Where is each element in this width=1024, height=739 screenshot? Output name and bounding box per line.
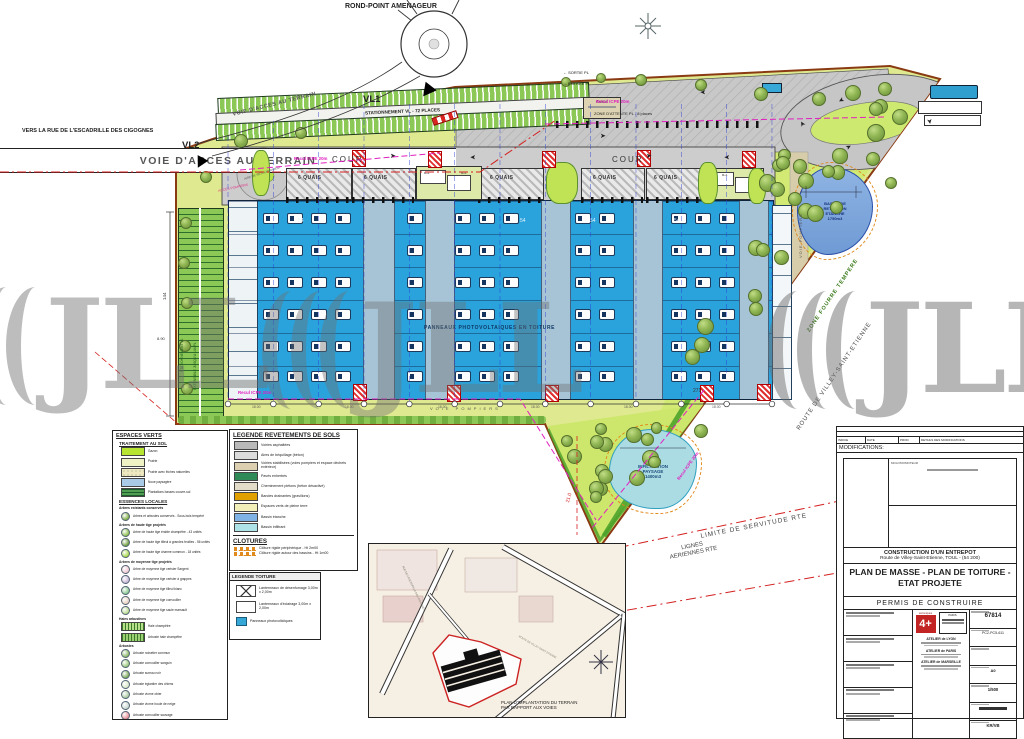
site-plan-sheet: JLL JLL JLL VOIE D'ACCES AU TERRAIN VERS… (0, 0, 1024, 718)
legend-row: Arbuste viorne obier (121, 690, 225, 699)
skylight (479, 277, 495, 288)
legend-swatch (121, 488, 145, 497)
dock-teeth (581, 197, 643, 203)
roof-strip (363, 201, 395, 399)
skylight (263, 309, 279, 320)
roof-purlin-lines (229, 201, 773, 399)
skylight-x-icon (236, 585, 256, 597)
skylight (575, 341, 591, 352)
legend-group-head: Arbustes (119, 644, 225, 648)
pl-label: PL (445, 62, 457, 73)
legend-row: Bassin infiltrant (234, 523, 355, 532)
tree-icon (832, 148, 847, 163)
location-inset-map: RUE DE L'ESCADRILLE DES CIGOGNES ROUTE D… (368, 543, 626, 718)
technical-box-icon (428, 151, 442, 168)
dock-module (646, 168, 704, 200)
dim-18: 18.00 (345, 406, 354, 410)
zone-attente-label: ZONE D'ATTENTE PL - 8 places (594, 112, 652, 117)
dock-module (581, 168, 645, 200)
legend-row: Lanterneaux de désenfumage 3,00m x 2,00m (236, 585, 318, 597)
inset-compass-icon (589, 650, 613, 674)
tree-icon (595, 423, 607, 435)
tree-icon (749, 302, 763, 316)
decoration (924, 645, 958, 647)
skylight (599, 309, 615, 320)
signatory-cell (844, 662, 912, 688)
skylight (455, 213, 471, 224)
legend-row: Arbre de haute tige charme commun - 18 u… (121, 549, 225, 558)
warehouse-building (228, 200, 774, 400)
dim-144: 144 (162, 292, 167, 300)
dock-module (286, 168, 352, 200)
legend-row: Prairie (121, 458, 225, 467)
fence-icon (234, 552, 256, 556)
legend-label: Aires de béquillage (béton) (261, 454, 304, 458)
vl1-label: VL1 (363, 95, 380, 106)
skylight (287, 245, 303, 256)
legend-row: Arbuste viorne boule de neige (121, 701, 225, 710)
signature-grid: tectoniques 4+ PARIS ATELIER de LYONATEL… (843, 610, 1017, 739)
legend-swatch (234, 492, 258, 501)
espaces-verts-legend: ESPACES VERTS TRAITEMENT AU SOL GazonPra… (112, 430, 228, 720)
logo-4plus: 4+ (916, 615, 936, 633)
value-text: PC2-PC5-611 (970, 631, 1016, 635)
tree-icon (178, 257, 190, 269)
legend-row: Arbuste églantier des chiens (121, 680, 225, 689)
legend-swatch (121, 468, 145, 477)
tree-legend-icon (121, 528, 130, 537)
tree-icon (590, 491, 602, 503)
skylight (407, 309, 423, 320)
bottom-hedge-strip (178, 416, 546, 424)
tree-icon (807, 205, 824, 222)
legend-group-head: Arbres de moyenne tige projetés (119, 560, 225, 564)
r1-label: R+1 (722, 174, 728, 177)
legend-label: Gazon (148, 450, 157, 453)
skylight (479, 245, 495, 256)
toiture-legend: LEGENDE TOITURE Lanterneaux de désenfuma… (229, 572, 321, 640)
project-address: Route de Villey-Saint-Etienne, TOUL - (5… (845, 556, 1015, 561)
legend-row: Aires de béquillage (béton) (234, 451, 355, 460)
legend-label: Arbre de moyenne tige saule marsault (133, 609, 187, 612)
skylight (407, 277, 423, 288)
skylight (695, 371, 711, 382)
legend-label: Arbuste haie champêtre (148, 636, 182, 639)
decoration (846, 693, 880, 695)
sortie-pl-label: ← SORTIE PL (563, 71, 589, 76)
technical-box-icon (542, 151, 556, 168)
atelier-block: ATELIER de MARSEILLE (913, 660, 969, 669)
legend-label: Plantations basses couvre-sol (148, 491, 190, 494)
dock-teeth (352, 197, 414, 203)
legend-swatch (234, 513, 258, 522)
legend-row: Cheminement piétons (béton désactivé) (234, 482, 355, 491)
decoration (924, 668, 958, 670)
skylight (407, 245, 423, 256)
value-cell: 1/500 (970, 684, 1016, 702)
flow-arrow-icon: ➤ (925, 118, 933, 125)
legend-title: LEGENDE TOITURE (230, 573, 320, 581)
office-room (447, 175, 471, 191)
order-stamp: PARIS (939, 612, 967, 634)
skylight (695, 245, 711, 256)
value-cell: PC2-PC5-611 (970, 629, 1016, 647)
cour-planting (546, 162, 578, 204)
legend-label: Arbuste cornouiller sanguin (133, 662, 172, 665)
dock-teeth (478, 197, 542, 203)
tree-legend-icon (121, 575, 130, 584)
legend-label: Voiries asphaltées (261, 444, 290, 448)
project-box: CONSTRUCTION D'UN ENTREPOT Route de Vill… (843, 548, 1017, 564)
atelier-block: ATELIER de LYON (913, 637, 969, 646)
skylight (719, 341, 735, 352)
decoration (924, 656, 958, 658)
atelier-name: ATELIER de MARSEILLE (913, 660, 969, 664)
skylight (599, 277, 615, 288)
tree-legend-icon (121, 549, 130, 558)
roof-strip (425, 201, 455, 399)
east-rooms-column (772, 205, 792, 400)
technical-box-icon (447, 385, 461, 402)
legend-label: Arbuste noisetier commun (133, 652, 170, 655)
legend-label: Lanterneaux de désenfumage 3,00m x 2,00m (259, 587, 318, 595)
technical-box-icon (757, 384, 771, 401)
legend-row: Clôture rigide autour des bassins - Ht 1… (234, 552, 355, 556)
skylight (719, 371, 735, 382)
legend-label: Arbuste églantier des chiens (133, 683, 173, 686)
entree-pl-text: ENTREE PL (568, 81, 590, 86)
tree-icon (866, 152, 880, 166)
tree-legend-icon (121, 690, 130, 699)
tree-icon (648, 456, 661, 469)
legend-swatch (234, 482, 258, 491)
dim-18: 18.00 (624, 406, 633, 410)
legend-title: ESPACES VERTS (116, 433, 224, 439)
vl2-label: VL2 (182, 141, 199, 152)
legend-label: Arbre de moyenne tige cerisier à grappes (133, 578, 191, 581)
legend-row: Arbuste noisetier commun (121, 649, 225, 658)
quais-label: 6 QUAIS (593, 176, 617, 182)
skylight (287, 277, 303, 288)
tree-icon (180, 217, 192, 229)
decoration (846, 689, 894, 691)
drawing-title-box: PLAN DE MASSE - PLAN DE TOITURE - ETAT P… (843, 564, 1017, 597)
legend-swatch (234, 503, 258, 512)
legend-label: Arbre de moyenne tige cerisier Sargent (133, 568, 188, 571)
legend-label: Espaces verts de pleine terre (261, 505, 308, 509)
value-text: 1/500 (970, 687, 1016, 692)
panneaux-photovoltaiques-label: PANNEAUX PHOTOVOLTAIQUES EN TOITURE (424, 326, 555, 332)
skylight (335, 309, 351, 320)
skylight (287, 309, 303, 320)
skylight (575, 309, 591, 320)
dim-18: 18.00 (531, 406, 540, 410)
dock-module (352, 168, 416, 200)
tree-icon (234, 134, 248, 148)
roundabout-label: ROND-POINT AMENAGEUR (345, 3, 437, 11)
dim-54: 54 (590, 219, 596, 225)
value-cell (970, 647, 1016, 665)
legend-label: Haie champêtre (148, 625, 171, 628)
skylight (503, 213, 519, 224)
legend-group-head: Arbres de haute tige projetés (119, 523, 225, 527)
skylight (575, 213, 591, 224)
skylight (479, 213, 495, 224)
decoration (971, 648, 989, 649)
tree-icon (812, 92, 826, 106)
legend-label: Arbre de moyenne tige cornouiller (133, 599, 181, 602)
stationnement-ext-label2: EXTENSIBLE JUSQU'A 144 PL (194, 342, 198, 390)
legend-label: Voiries stabilisées (voies pompiers et e… (261, 462, 355, 470)
value-text: A0 (970, 668, 1016, 673)
skylight (599, 341, 615, 352)
recul-icpe-label: Recul ICPE 20m (596, 99, 629, 104)
skylight (335, 341, 351, 352)
technical-box-icon (353, 384, 367, 401)
value-cell: 67814 (970, 610, 1016, 628)
legend-row: Bassin étanche (234, 513, 355, 522)
inset-map-drawing (369, 544, 625, 717)
tree-legend-icon (121, 606, 130, 615)
skylight (671, 341, 687, 352)
recul-icpe-label: Recul ICPE 20m (238, 390, 271, 395)
skylight (503, 371, 519, 382)
tree-icon (694, 424, 708, 438)
atelier-name: ATELIER de LYON (913, 637, 969, 641)
tree-icon (869, 102, 883, 116)
legend-row: Arbres et arbustes conservés - Sous-bois… (121, 512, 225, 521)
skylight (455, 277, 471, 288)
skylight (719, 245, 735, 256)
legend-row: Arbre de haute tige érable champêtre - 4… (121, 528, 225, 537)
mod-col: INDICE (837, 437, 866, 443)
decoration (846, 664, 894, 666)
skylight (575, 277, 591, 288)
tree-legend-icon (121, 586, 130, 595)
legend-row: Arbre de moyenne tige tilleul blanc (121, 586, 225, 595)
legend-label: Clôture rigide périphérique - Ht 2m00 (259, 547, 318, 551)
tree-legend-icon (121, 701, 130, 710)
skylight (263, 245, 279, 256)
skylight (335, 277, 351, 288)
skylight (263, 341, 279, 352)
flow-arrow-icon: ➤ (470, 153, 476, 160)
tree-legend-icon (121, 596, 130, 605)
legend-row: Clôture rigide périphérique - Ht 2m00 (234, 547, 355, 551)
tree-icon (830, 201, 843, 214)
legend-label: Cheminement piétons (béton désactivé) (261, 485, 325, 489)
legend-label: Bandes drainantes (gravillons) (261, 495, 310, 499)
flow-arrow-icon: ➤ (724, 153, 730, 160)
skylight (695, 277, 711, 288)
legend-row: Arbre de moyenne tige cornouiller (121, 596, 225, 605)
decoration (846, 615, 880, 617)
legend-row: Pavés enherbés (234, 472, 355, 481)
decoration (846, 612, 894, 614)
tree-legend-icon (121, 680, 130, 689)
recul-icpe-label: Recul ICPE 20m (294, 156, 327, 161)
sortie-pl-text: SORTIE PL (568, 70, 589, 75)
tree-icon (200, 171, 212, 183)
pl-waiting-spots (556, 121, 764, 128)
skylight (455, 245, 471, 256)
legend-label: Arbuste sureau noir (133, 672, 161, 675)
legend-label: Arbuste cornouiller sauvage (133, 714, 173, 717)
dim-18: 18.00 (438, 406, 447, 410)
legend-row: Arbuste sureau noir (121, 670, 225, 679)
skylight (263, 371, 279, 382)
voie-pompiers-label-vertical: VOIE POMPIERS (799, 213, 804, 258)
decoration (971, 704, 989, 705)
legend-swatch (121, 622, 145, 631)
legend-swatch (234, 523, 258, 532)
legend-label: Prairie (148, 460, 157, 463)
legend-label: Panneaux photovoltaïques (250, 620, 293, 624)
dim-271: 271 (693, 389, 701, 395)
skylight (287, 371, 303, 382)
skylight (335, 213, 351, 224)
tree-icon (596, 73, 606, 83)
dim-18: 18.00 (712, 406, 721, 410)
legend-row: Prairie avec friches naturelles (121, 468, 225, 477)
access-road-label: VOIE D'ACCES AU TERRAIN (140, 155, 317, 167)
decoration (846, 715, 894, 717)
roof-strip (541, 201, 571, 399)
technical-box-icon (742, 151, 756, 168)
pv-panel-icon (236, 617, 247, 626)
architect-logo: tectoniques 4+ (916, 612, 936, 633)
legend-label: Noue paysagère (148, 481, 171, 484)
skylight (599, 213, 615, 224)
cour-planting (698, 162, 718, 204)
modifications-label: MODIFICATIONS: (837, 444, 1023, 453)
title-block: INDICE DATE PROD DETAILS DES MODIFICATIO… (836, 426, 1024, 719)
decoration (921, 642, 960, 644)
legend-label: Arbuste viorne boule de neige (133, 703, 175, 706)
skylight (599, 245, 615, 256)
decoration (921, 654, 960, 656)
legend-label: Bassin infiltrant (261, 526, 285, 530)
dim-54: 54 (298, 219, 304, 225)
decoration (846, 641, 880, 643)
stationnement-ext-label1: STATIONNEMENT VL (181, 338, 185, 372)
legend-row: Arbuste cornouiller sauvage (121, 711, 225, 720)
tree-icon (798, 173, 814, 189)
tree-icon (845, 85, 861, 101)
legend-row: Arbre de moyenne tige cerisier Sargent (121, 565, 225, 574)
dim-18: 18.00 (252, 406, 261, 410)
legend-row: Panneaux photovoltaïques (236, 617, 318, 626)
legend-row: Arbre de moyenne tige saule marsault (121, 606, 225, 615)
legend-row: Arbuste haie champêtre (121, 633, 225, 642)
skylight (263, 277, 279, 288)
tree-legend-icon (121, 649, 130, 658)
legend-group-head: Haies arbustives (119, 617, 225, 621)
phase-box: PERMIS DE CONSTRUIRE (843, 597, 1017, 610)
skylight (695, 213, 711, 224)
value-cell (970, 703, 1016, 721)
cour-label: COUR (612, 155, 644, 164)
entree-pl-label: → ENTREE PL (563, 82, 590, 87)
dim-54: 54 (674, 219, 680, 225)
skylight (455, 371, 471, 382)
skylight (407, 213, 423, 224)
legend-row: Espaces verts de pleine terre (234, 503, 355, 512)
tree-legend-icon (121, 538, 130, 547)
skylight (311, 341, 327, 352)
legend-label: Bassin étanche (261, 516, 286, 520)
signatory-cell (844, 688, 912, 714)
revetements-legend: LEGENDE REVETEMENTS DE SOLS Voiries asph… (229, 429, 358, 571)
skylight (503, 341, 519, 352)
legend-row: Bandes drainantes (gravillons) (234, 492, 355, 501)
inset-caption: PLAN D'IMPLANTATION DU TERRAIN PAR RAPPO… (501, 700, 577, 710)
left-parking-spine (199, 208, 201, 418)
legend-label: Arbre de haute tige érable champêtre - 4… (133, 531, 202, 534)
roof-strip (633, 201, 663, 399)
flow-arrow-icon: ➤ (390, 153, 396, 160)
legend-row: Voiries asphaltées (234, 441, 355, 450)
signatory-cell (844, 636, 912, 662)
tree-legend-icon (121, 670, 130, 679)
skylight (719, 213, 735, 224)
fence-icon (234, 547, 256, 551)
dock-module (478, 168, 544, 200)
decoration (846, 638, 894, 640)
skylight (335, 245, 351, 256)
signatory-cell (844, 610, 912, 636)
modifications-header: INDICE DATE PROD DETAILS DES MODIFICATIO… (837, 437, 1023, 444)
skylight (407, 341, 423, 352)
legend-subtitle-essences: ESSENCES LOCALES (119, 499, 224, 504)
tree-legend-icon (121, 711, 130, 720)
tree-icon (774, 250, 789, 265)
legend-subtitle-sols: TRAITEMENT AU SOL (119, 441, 224, 446)
legend-label: Lanterneaux d'éclairage 3,00m x 2,00m (259, 603, 318, 611)
flow-arrow-icon: ➤ (700, 88, 706, 95)
skylight (263, 213, 279, 224)
legend-row: Plantations basses couvre-sol (121, 488, 225, 497)
value-text: KR/VB (970, 723, 1016, 728)
dim-54: 54 (520, 219, 526, 225)
skylight (335, 371, 351, 382)
legend-title: LEGENDE REVETEMENTS DE SOLS (233, 432, 354, 439)
legend-label: Pavés enherbés (261, 475, 287, 479)
skylight (575, 245, 591, 256)
tree-icon (885, 177, 897, 189)
legend-swatch (234, 451, 258, 460)
canopy-box (930, 85, 978, 99)
r1-label: R+1 (461, 172, 467, 175)
legend-swatch (121, 633, 145, 642)
skylight (311, 371, 327, 382)
phase-label: PERMIS DE CONSTRUIRE (844, 600, 1016, 607)
tree-icon (629, 470, 645, 486)
legend-swatch (121, 478, 145, 487)
skylight (455, 309, 471, 320)
legend-row: Arbre de haute tige tilleul à grandes fe… (121, 538, 225, 547)
quais-label: 6 QUAIS (364, 176, 388, 182)
skylight (479, 371, 495, 382)
quais-label: 6 QUAIS (654, 176, 678, 182)
mod-col: PROD (899, 437, 920, 443)
tree-icon (635, 74, 647, 86)
legend-swatch (234, 441, 258, 450)
legend-swatch (121, 447, 145, 456)
moa-label: MOA PROMOTEUR (889, 459, 1016, 467)
quais-label: 6 QUAIS (490, 176, 514, 182)
tree-icon (754, 87, 768, 101)
